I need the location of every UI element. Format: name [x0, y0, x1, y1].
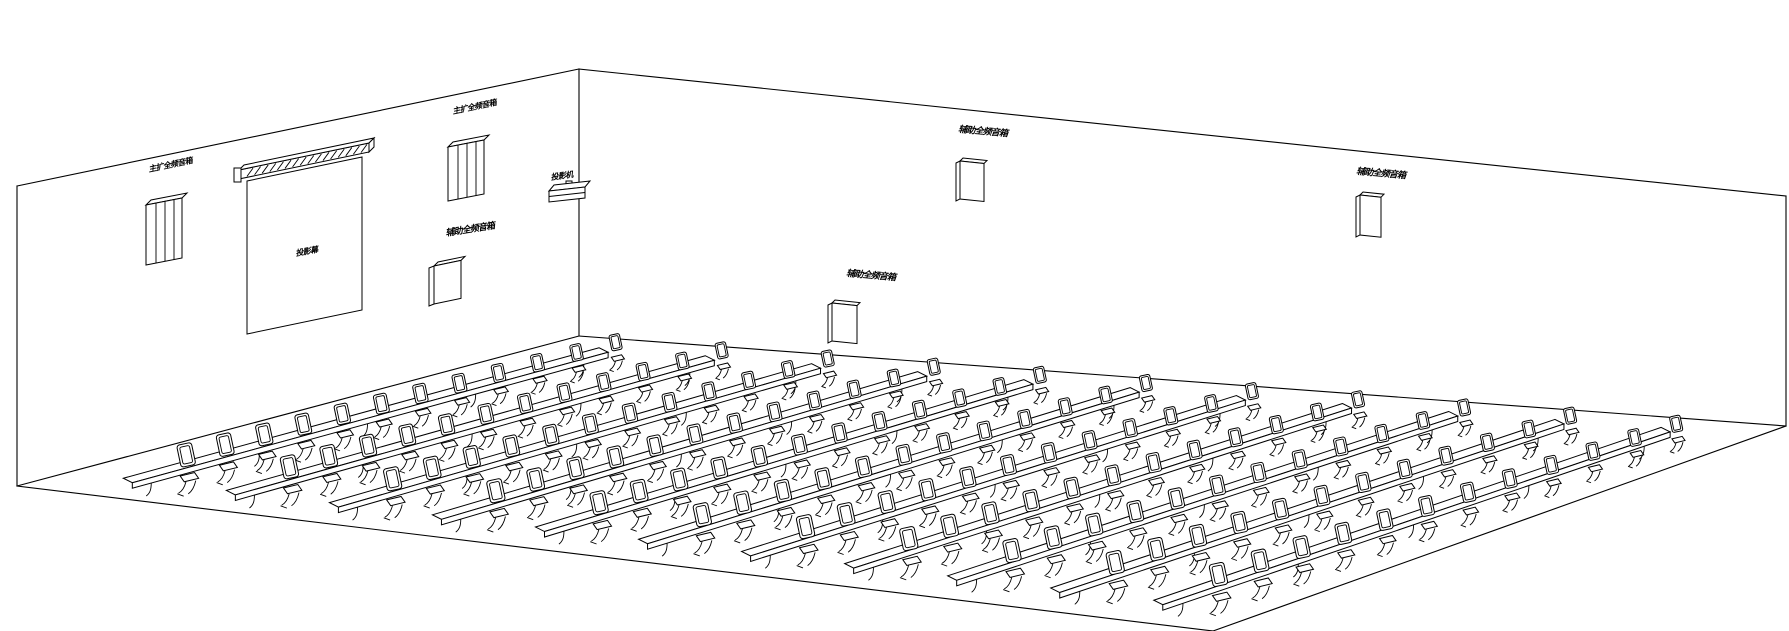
chair-seat — [823, 371, 836, 378]
chair-legs — [676, 380, 690, 391]
chair-seat — [1190, 464, 1205, 472]
chair-8-0 — [1457, 399, 1473, 437]
chair-legs — [503, 470, 520, 484]
chair-legs — [1251, 494, 1267, 507]
chair-legs — [734, 528, 752, 543]
chair-seat — [1108, 491, 1124, 499]
chair-seat — [1047, 555, 1065, 564]
chair-seat — [1460, 420, 1473, 427]
desk-leg — [146, 483, 151, 496]
chair-legs — [1352, 418, 1365, 429]
chair-seat — [1254, 578, 1272, 587]
chair-seat — [1248, 404, 1261, 411]
speaker-side — [828, 303, 832, 343]
desk-leg — [1189, 553, 1194, 566]
chair-legs — [374, 426, 390, 440]
chair-legs — [583, 447, 599, 461]
chair-seat — [1036, 387, 1049, 394]
desk-leg — [868, 567, 873, 580]
chair-seat — [1085, 455, 1100, 463]
chair-legs — [1292, 481, 1307, 494]
desk-leg — [249, 495, 254, 508]
chair-seat — [1354, 412, 1367, 419]
chair-legs — [1205, 422, 1219, 433]
chair-legs — [1311, 431, 1325, 442]
chair-4-0 — [1033, 366, 1049, 404]
chair-seat — [717, 363, 730, 370]
speaker-body — [146, 198, 182, 265]
chair-legs — [927, 385, 940, 396]
chair-legs — [384, 505, 402, 521]
chair-legs — [1003, 576, 1021, 592]
chair-seat — [1358, 497, 1374, 505]
desk-leg — [353, 507, 358, 520]
chair-seat — [922, 506, 939, 514]
chair-seat — [1421, 521, 1437, 529]
chair-legs — [1628, 456, 1642, 467]
chair-legs — [557, 414, 572, 427]
chair-legs — [590, 528, 608, 544]
chair-seat — [881, 519, 898, 528]
chair-legs — [607, 481, 624, 495]
chair-legs — [1314, 518, 1330, 532]
chair-seat — [1400, 483, 1415, 491]
chair-seat — [1003, 480, 1019, 488]
chair-seat — [1006, 568, 1024, 577]
speaker-front — [832, 303, 857, 344]
chair-legs — [953, 418, 967, 430]
chair-legs — [832, 455, 848, 468]
left-wall-top-edge — [17, 69, 579, 186]
chair-legs — [1064, 511, 1080, 525]
chair-seat — [1483, 456, 1497, 463]
chair-seat — [1672, 436, 1685, 443]
chair-seat — [1566, 428, 1579, 435]
chair-legs — [1123, 448, 1138, 460]
chair-legs — [662, 423, 677, 436]
chair-legs — [782, 388, 796, 399]
chair-legs — [815, 502, 832, 516]
desk-leg — [572, 444, 577, 457]
chair-legs — [1564, 434, 1577, 445]
chair-seat — [930, 379, 943, 386]
chair-seat — [1125, 442, 1140, 449]
chair-legs — [424, 493, 442, 508]
chair-legs — [1270, 444, 1284, 456]
chair-legs — [320, 481, 338, 496]
label-aux-back-mid: 辅助全频音箱 — [846, 268, 899, 283]
chair-legs — [792, 467, 808, 481]
projection-screen: 投影幕 — [234, 138, 374, 334]
chair-seat — [1142, 396, 1155, 403]
aux-speaker-back-high: 辅助全频音箱 — [956, 124, 1010, 201]
desk-leg — [1304, 515, 1309, 528]
chair-legs — [847, 409, 861, 421]
speaker-front — [434, 260, 461, 304]
chair-seat — [1380, 535, 1396, 543]
chair-legs — [702, 412, 717, 424]
desk-leg — [1103, 449, 1108, 462]
chair-legs — [1502, 500, 1517, 513]
chair-seat — [985, 530, 1002, 539]
chair-legs — [1082, 461, 1097, 474]
speaker-front — [960, 161, 984, 202]
chair-legs — [715, 369, 728, 380]
chair-5-0 — [1139, 374, 1155, 412]
chair-seat — [1109, 580, 1127, 589]
chair-legs — [1334, 467, 1349, 479]
chair-seat — [963, 493, 979, 501]
chair-seat — [1234, 539, 1251, 547]
chair-seat — [800, 544, 818, 553]
chair-legs — [413, 415, 429, 428]
aux-speaker-back-right: 辅助全频音箱 — [1356, 166, 1409, 237]
desk-leg — [787, 422, 792, 435]
chair-legs — [1034, 393, 1047, 404]
chair-seat — [1149, 478, 1165, 486]
chair-legs — [919, 513, 936, 527]
chair-legs — [1273, 532, 1289, 546]
label-aux-back-right: 辅助全频音箱 — [1356, 166, 1409, 181]
chair-legs — [693, 540, 711, 556]
chair-legs — [821, 377, 834, 388]
desk-leg — [681, 412, 686, 425]
chair-7-0 — [1351, 390, 1367, 428]
desk-leg — [1313, 467, 1318, 480]
chair-legs — [1148, 574, 1166, 589]
desk-leg — [1095, 494, 1100, 507]
chair-seat — [1067, 504, 1083, 512]
chair-seat — [1588, 465, 1602, 472]
chair-legs — [767, 433, 782, 446]
chair-legs — [797, 552, 815, 568]
chair-legs — [837, 539, 855, 554]
desk-leg — [997, 440, 1002, 453]
chair-legs — [1127, 535, 1144, 549]
chair-legs — [1106, 588, 1124, 604]
chair-legs — [977, 452, 992, 465]
chair-seat — [840, 532, 858, 541]
chair-legs — [1168, 522, 1184, 536]
label-projector: 投影机 — [550, 170, 575, 182]
chair-seat — [1089, 541, 1106, 550]
chair-legs — [609, 361, 622, 372]
chair-legs — [1335, 557, 1352, 571]
seating-area — [123, 333, 1685, 616]
chair-seat — [1192, 553, 1209, 562]
chair-legs — [518, 425, 534, 438]
chair-legs — [807, 421, 822, 433]
chair-seat — [1130, 528, 1147, 536]
chair-legs — [941, 551, 959, 566]
chair-legs — [531, 382, 545, 394]
aux-speaker-back-mid: 辅助全频音箱 — [828, 268, 898, 344]
main-speaker-left: 主扩全频音箱 — [146, 155, 195, 265]
chair-legs — [1522, 448, 1536, 459]
chair-seat — [1505, 493, 1520, 501]
av-room-diagram: 投影幕 主扩全频音箱 主扩全频音箱 辅助全频音箱 辅助全频音箱 辅助全频音箱 — [0, 0, 1789, 631]
chair-legs — [1210, 600, 1228, 616]
chair-legs — [631, 516, 649, 531]
speaker-side — [429, 266, 434, 306]
chair-legs — [1044, 563, 1062, 578]
desk-leg — [662, 543, 667, 556]
chair-legs — [1105, 498, 1121, 512]
back-wall-top-edge — [579, 69, 1786, 196]
chair-legs — [913, 430, 928, 442]
chair-seat — [1171, 514, 1187, 522]
chair-seat — [1044, 468, 1060, 476]
chair-legs — [570, 371, 584, 382]
desk-leg — [456, 519, 461, 532]
chair-legs — [937, 465, 953, 478]
chair-legs — [527, 505, 545, 520]
chair-legs — [687, 457, 703, 471]
desk-leg — [1075, 591, 1080, 604]
chair-seat — [1166, 429, 1180, 436]
chair-seat — [1151, 566, 1169, 575]
chair-legs — [543, 458, 559, 472]
chair-legs — [1042, 474, 1058, 487]
desk-leg — [765, 555, 770, 568]
chair-seat — [611, 355, 624, 362]
desk-leg — [990, 484, 995, 497]
chair-legs — [960, 500, 976, 514]
chair-seat — [1377, 447, 1391, 454]
chair-legs — [1458, 426, 1471, 437]
chair-legs — [281, 493, 299, 509]
chair-legs — [1356, 504, 1372, 517]
chair-seat — [1212, 592, 1230, 601]
chair-legs — [1099, 414, 1113, 425]
desk-leg — [471, 394, 476, 407]
desk-leg — [886, 474, 891, 487]
chair-seat — [1231, 451, 1246, 458]
projector: 投影机 — [549, 170, 590, 202]
desk-leg — [1419, 476, 1424, 489]
chair-legs — [334, 437, 350, 451]
chair-legs — [636, 391, 650, 403]
chair-legs — [872, 442, 887, 455]
chair-10-0 — [1669, 415, 1685, 453]
chair-legs — [439, 448, 455, 462]
room-perspective-drawing: 投影幕 主扩全频音箱 主扩全频音箱 辅助全频音箱 辅助全频音箱 辅助全频音箱 — [0, 0, 1789, 631]
chair-legs — [452, 404, 467, 417]
chair-legs — [177, 481, 195, 497]
chair-legs — [295, 448, 312, 462]
desk-leg — [676, 454, 681, 467]
chair-seat — [1295, 474, 1310, 482]
chair-seat — [944, 543, 962, 552]
chair-legs — [727, 445, 743, 458]
desk-leg — [467, 434, 472, 447]
chair-legs — [742, 400, 756, 412]
chair-seat — [1272, 438, 1286, 445]
chair-legs — [622, 435, 638, 448]
speaker-body — [448, 140, 484, 201]
chair-3-0 — [927, 358, 943, 396]
desk-leg — [1199, 505, 1204, 518]
speaker-side — [956, 161, 960, 201]
screen-sheet — [247, 157, 362, 334]
desk-leg — [781, 464, 786, 477]
chair-seat — [903, 556, 921, 565]
chair-legs — [1210, 508, 1226, 522]
label-aux-back-high: 辅助全频音箱 — [958, 124, 1011, 139]
chair-legs — [1140, 401, 1153, 412]
chair-legs — [1375, 453, 1389, 465]
chair-legs — [1164, 435, 1178, 447]
chair-legs — [1670, 442, 1683, 453]
chair-legs — [1397, 490, 1412, 503]
chair-9-0 — [1563, 407, 1579, 445]
desk-leg — [576, 403, 581, 416]
chair-seat — [1317, 511, 1333, 519]
chair-legs — [1461, 514, 1477, 527]
label-main-speaker-right: 主扩全频音箱 — [451, 97, 499, 116]
chair-legs — [1251, 586, 1269, 601]
aux-speaker-left-wall: 辅助全频音箱 — [429, 220, 498, 306]
chair-seat — [1547, 479, 1562, 486]
chair-legs — [1231, 546, 1248, 560]
desk-leg — [972, 579, 977, 592]
chair-legs — [1586, 471, 1600, 483]
chair-seat — [1463, 507, 1479, 515]
chair-legs — [478, 436, 494, 450]
chair-legs — [1419, 528, 1435, 542]
chair-legs — [887, 397, 901, 408]
chair-legs — [896, 477, 912, 491]
chair-legs — [1439, 476, 1454, 488]
chair-legs — [1058, 427, 1072, 439]
chair-legs — [856, 490, 872, 504]
chair-legs — [1018, 439, 1033, 451]
desk-leg — [1208, 458, 1213, 471]
chair-legs — [1187, 471, 1202, 484]
chair-legs — [900, 564, 918, 580]
chair-legs — [751, 479, 767, 493]
chair-seat — [1254, 487, 1270, 495]
chair-legs — [1481, 462, 1495, 474]
chair-legs — [1416, 439, 1430, 450]
chair-legs — [487, 516, 505, 532]
desk-leg — [559, 531, 564, 544]
chair-seat — [1026, 517, 1043, 525]
chair-seat — [1338, 550, 1355, 558]
speaker-side — [1356, 195, 1360, 237]
screen-bracket — [234, 168, 241, 182]
chair-legs — [1377, 543, 1393, 557]
chair-legs — [217, 470, 235, 485]
chair-legs — [1228, 458, 1243, 470]
chair-legs — [1001, 487, 1017, 501]
chair-legs — [1544, 485, 1559, 497]
chair-legs — [1023, 524, 1040, 538]
chair-seat — [1275, 525, 1291, 533]
chair-6-0 — [1245, 382, 1261, 420]
main-speaker-right: 主扩全频音箱 — [448, 97, 499, 201]
chair-legs — [1146, 484, 1162, 497]
chair-seat — [1212, 501, 1228, 509]
chair-legs — [1246, 409, 1259, 420]
label-aux-left-wall: 辅助全频音箱 — [445, 220, 498, 239]
chair-legs — [491, 393, 506, 405]
chair-legs — [993, 405, 1007, 416]
desk-leg — [892, 431, 897, 444]
chair-legs — [647, 469, 663, 483]
chair-seat — [1441, 470, 1456, 477]
chair-seat — [1336, 460, 1351, 467]
chair-legs — [597, 402, 612, 414]
chair-legs — [711, 492, 728, 506]
chair-legs — [399, 459, 416, 473]
speaker-front — [1360, 195, 1381, 237]
